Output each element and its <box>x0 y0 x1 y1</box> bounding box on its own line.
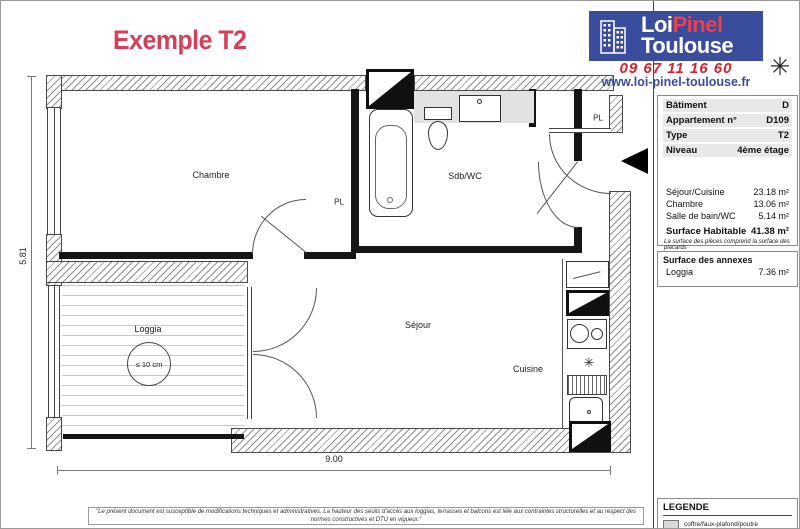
brand-logo: LoiPinel Toulouse <box>589 11 763 61</box>
floorplan-page: Exemple T2 ✳ C <box>0 0 800 529</box>
dimension-width-label: 9.00 <box>325 454 343 464</box>
sink-drain <box>587 410 591 414</box>
surface-total-label: Surface Habitable <box>666 226 746 237</box>
brand-toulouse: Toulouse <box>641 36 733 57</box>
window-loggia <box>48 285 60 418</box>
cooktop-burner-small <box>591 328 603 340</box>
bath-door-arc <box>538 162 578 228</box>
wall-chambre-bottom-stub <box>304 252 356 259</box>
technical-shaft-bottom <box>569 421 611 452</box>
kitchen-counter-edge <box>562 259 563 429</box>
washbasin-faucet <box>477 99 482 104</box>
dimension-line-vertical <box>31 77 32 449</box>
surface-row: Chambre13.06 m² <box>663 199 792 209</box>
dish-drainer <box>567 375 607 395</box>
wall-bath-bottom <box>356 246 582 253</box>
technical-shaft-kitchen <box>566 290 609 316</box>
wall-top-left <box>56 75 366 91</box>
compass-icon: ✳ <box>770 52 791 82</box>
legend-swatch <box>663 520 679 529</box>
room-label-loggia: Loggia <box>134 324 161 334</box>
dimension-height-label: 5.81 <box>18 247 28 265</box>
loggia-threshold <box>63 434 244 439</box>
window-chambre <box>47 107 61 235</box>
info-label: Niveau <box>666 145 697 156</box>
annexes-panel: Surface des annexes Loggia7.36 m² <box>657 251 798 287</box>
info-row: Appartement n°D109 <box>663 114 792 127</box>
info-value: D <box>782 100 789 111</box>
surface-total-row: Surface Habitable41.38 m² <box>663 226 792 237</box>
room-label-cuisine: Cuisine <box>513 364 543 374</box>
legend-item: coffre/faux-plafond/poutre <box>663 520 792 529</box>
annex-row: Loggia7.36 m² <box>663 267 792 277</box>
info-value: T2 <box>778 130 789 141</box>
wall-right-main <box>609 191 631 453</box>
info-row: TypeT2 <box>663 129 792 142</box>
wall-loggia-top <box>46 261 248 283</box>
technical-shaft-top <box>366 69 414 109</box>
surface-row: Salle de bain/WC5.14 m² <box>663 211 792 221</box>
wall-chambre-bath <box>351 89 359 253</box>
room-label-pl-chambre: PL <box>334 198 344 207</box>
room-label-sdbwc: Sdb/WC <box>448 171 482 181</box>
info-value: D109 <box>766 115 789 126</box>
surface-value: 5.14 m² <box>758 211 789 221</box>
annexes-title: Surface des annexes <box>663 255 792 265</box>
dimension-line-horizontal <box>58 470 611 471</box>
apartment-info-panel: BâtimentD Appartement n°D109 TypeT2 Nive… <box>657 95 798 246</box>
seuil-note-text: ≤ 10 cm <box>136 360 163 369</box>
info-label: Appartement n° <box>666 115 737 126</box>
surface-label: Séjour/Cuisine <box>666 187 725 197</box>
legend-label: coffre/faux-plafond/poutre <box>684 521 758 528</box>
dim-cap <box>57 466 58 475</box>
wall-bath-right-lower <box>574 227 582 253</box>
wall-left-upper <box>46 75 62 109</box>
drain-symbol: ✳ <box>584 355 595 371</box>
wall-right-upper <box>609 95 623 133</box>
surface-value: 23.18 m² <box>753 187 789 197</box>
building-icon <box>595 15 635 57</box>
website-link[interactable]: www.loi-pinel-toulouse.fr <box>581 75 771 89</box>
wall-left-lower <box>46 417 62 451</box>
surface-total-value: 41.38 m² <box>751 226 789 237</box>
legend-title: LEGENDE <box>663 502 792 516</box>
loggia-door-arc-lower <box>253 354 317 418</box>
disclaimer-box: "Le présent document est susceptible de … <box>88 507 644 525</box>
surface-note: La surface des pièces comprend la surfac… <box>663 239 792 251</box>
wall-chambre-bottom <box>59 252 253 259</box>
surface-row: Séjour/Cuisine23.18 m² <box>663 187 792 197</box>
toilet-bowl <box>428 121 448 150</box>
loggia-door-arc-upper <box>253 288 317 352</box>
dim-cap <box>27 448 36 449</box>
info-value: 4ème étage <box>737 145 789 156</box>
legend-panel: LEGENDE coffre/faux-plafond/poutre <box>657 498 798 529</box>
info-label: Bâtiment <box>666 100 707 111</box>
surface-label: Chambre <box>666 199 703 209</box>
info-row: Niveau4ème étage <box>663 144 792 157</box>
info-row: BâtimentD <box>663 99 792 112</box>
wall-bottom <box>231 428 621 453</box>
loggia-door-frame <box>247 287 252 419</box>
annex-label: Loggia <box>666 267 693 277</box>
toilet-tank <box>424 107 452 120</box>
brand-name: LoiPinel Toulouse <box>641 15 733 57</box>
dim-cap <box>27 76 36 77</box>
annex-value: 7.36 m² <box>758 267 789 277</box>
cooktop-burner-large <box>570 324 589 343</box>
room-label-sejour: Séjour <box>405 320 431 330</box>
surface-label: Salle de bain/WC <box>666 211 736 221</box>
seuil-note-circle: ≤ 10 cm <box>127 342 171 386</box>
entrance-arrow-icon <box>621 148 648 174</box>
entry-door-leaf <box>549 128 611 133</box>
bathtub-drain <box>387 197 393 203</box>
room-label-pl-entree: PL <box>593 114 603 123</box>
room-label-chambre: Chambre <box>192 170 229 180</box>
dim-cap <box>610 466 611 475</box>
surface-value: 13.06 m² <box>753 199 789 209</box>
page-title: Exemple T2 <box>113 25 246 56</box>
info-label: Type <box>666 130 687 141</box>
